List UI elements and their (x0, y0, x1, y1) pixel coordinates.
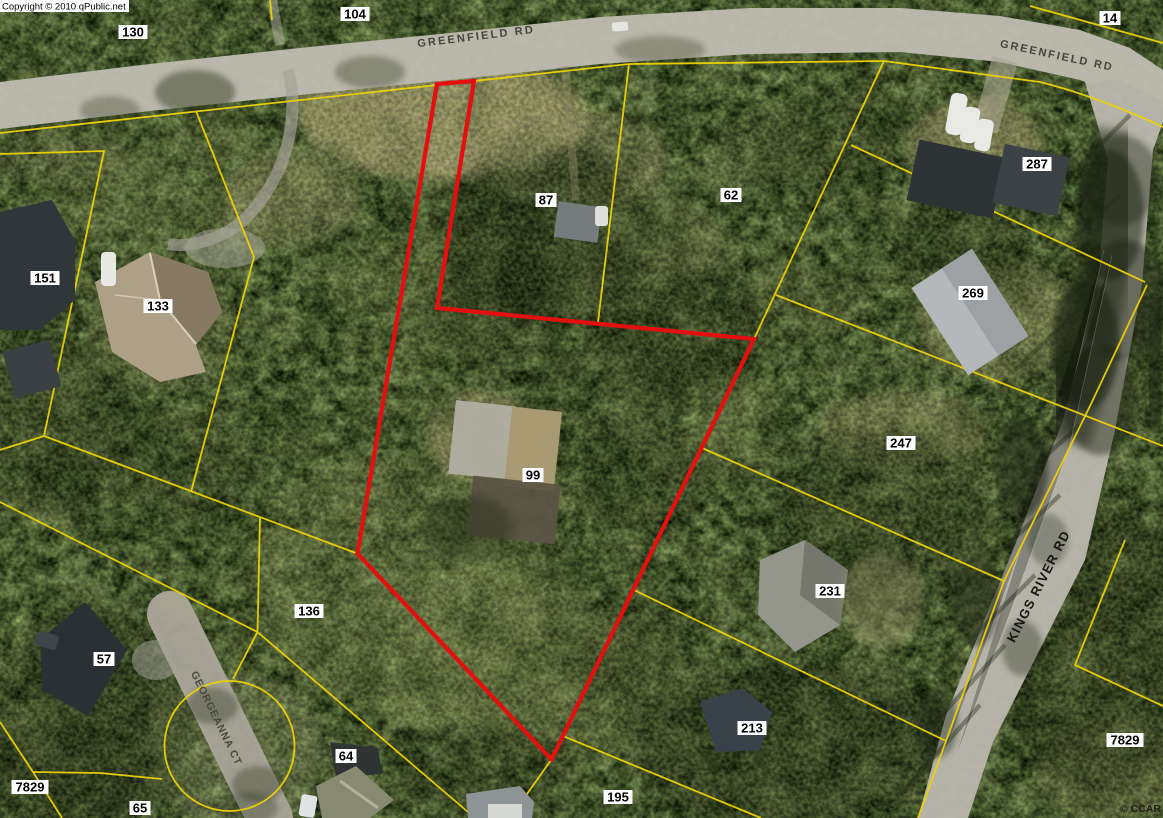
svg-text:7829: 7829 (1111, 733, 1140, 748)
svg-text:136: 136 (298, 604, 320, 619)
svg-text:195: 195 (607, 790, 629, 805)
svg-text:87: 87 (539, 193, 553, 208)
svg-text:99: 99 (526, 468, 540, 483)
svg-text:130: 130 (122, 25, 144, 40)
svg-text:269: 269 (962, 286, 984, 301)
svg-text:62: 62 (724, 188, 738, 203)
svg-text:133: 133 (147, 299, 169, 314)
svg-text:104: 104 (344, 7, 366, 22)
svg-text:57: 57 (97, 652, 111, 667)
svg-text:Copyright © 2010 qPublic.net: Copyright © 2010 qPublic.net (2, 2, 126, 13)
svg-text:151: 151 (34, 271, 56, 286)
svg-text:213: 213 (741, 721, 763, 736)
svg-text:14: 14 (1103, 11, 1118, 26)
svg-text:7829: 7829 (16, 780, 45, 795)
svg-text:© CCAR: © CCAR (1120, 803, 1161, 815)
svg-text:231: 231 (819, 584, 841, 599)
svg-text:64: 64 (339, 749, 354, 764)
svg-text:287: 287 (1026, 157, 1048, 172)
svg-text:247: 247 (890, 436, 912, 451)
svg-text:65: 65 (133, 801, 147, 816)
